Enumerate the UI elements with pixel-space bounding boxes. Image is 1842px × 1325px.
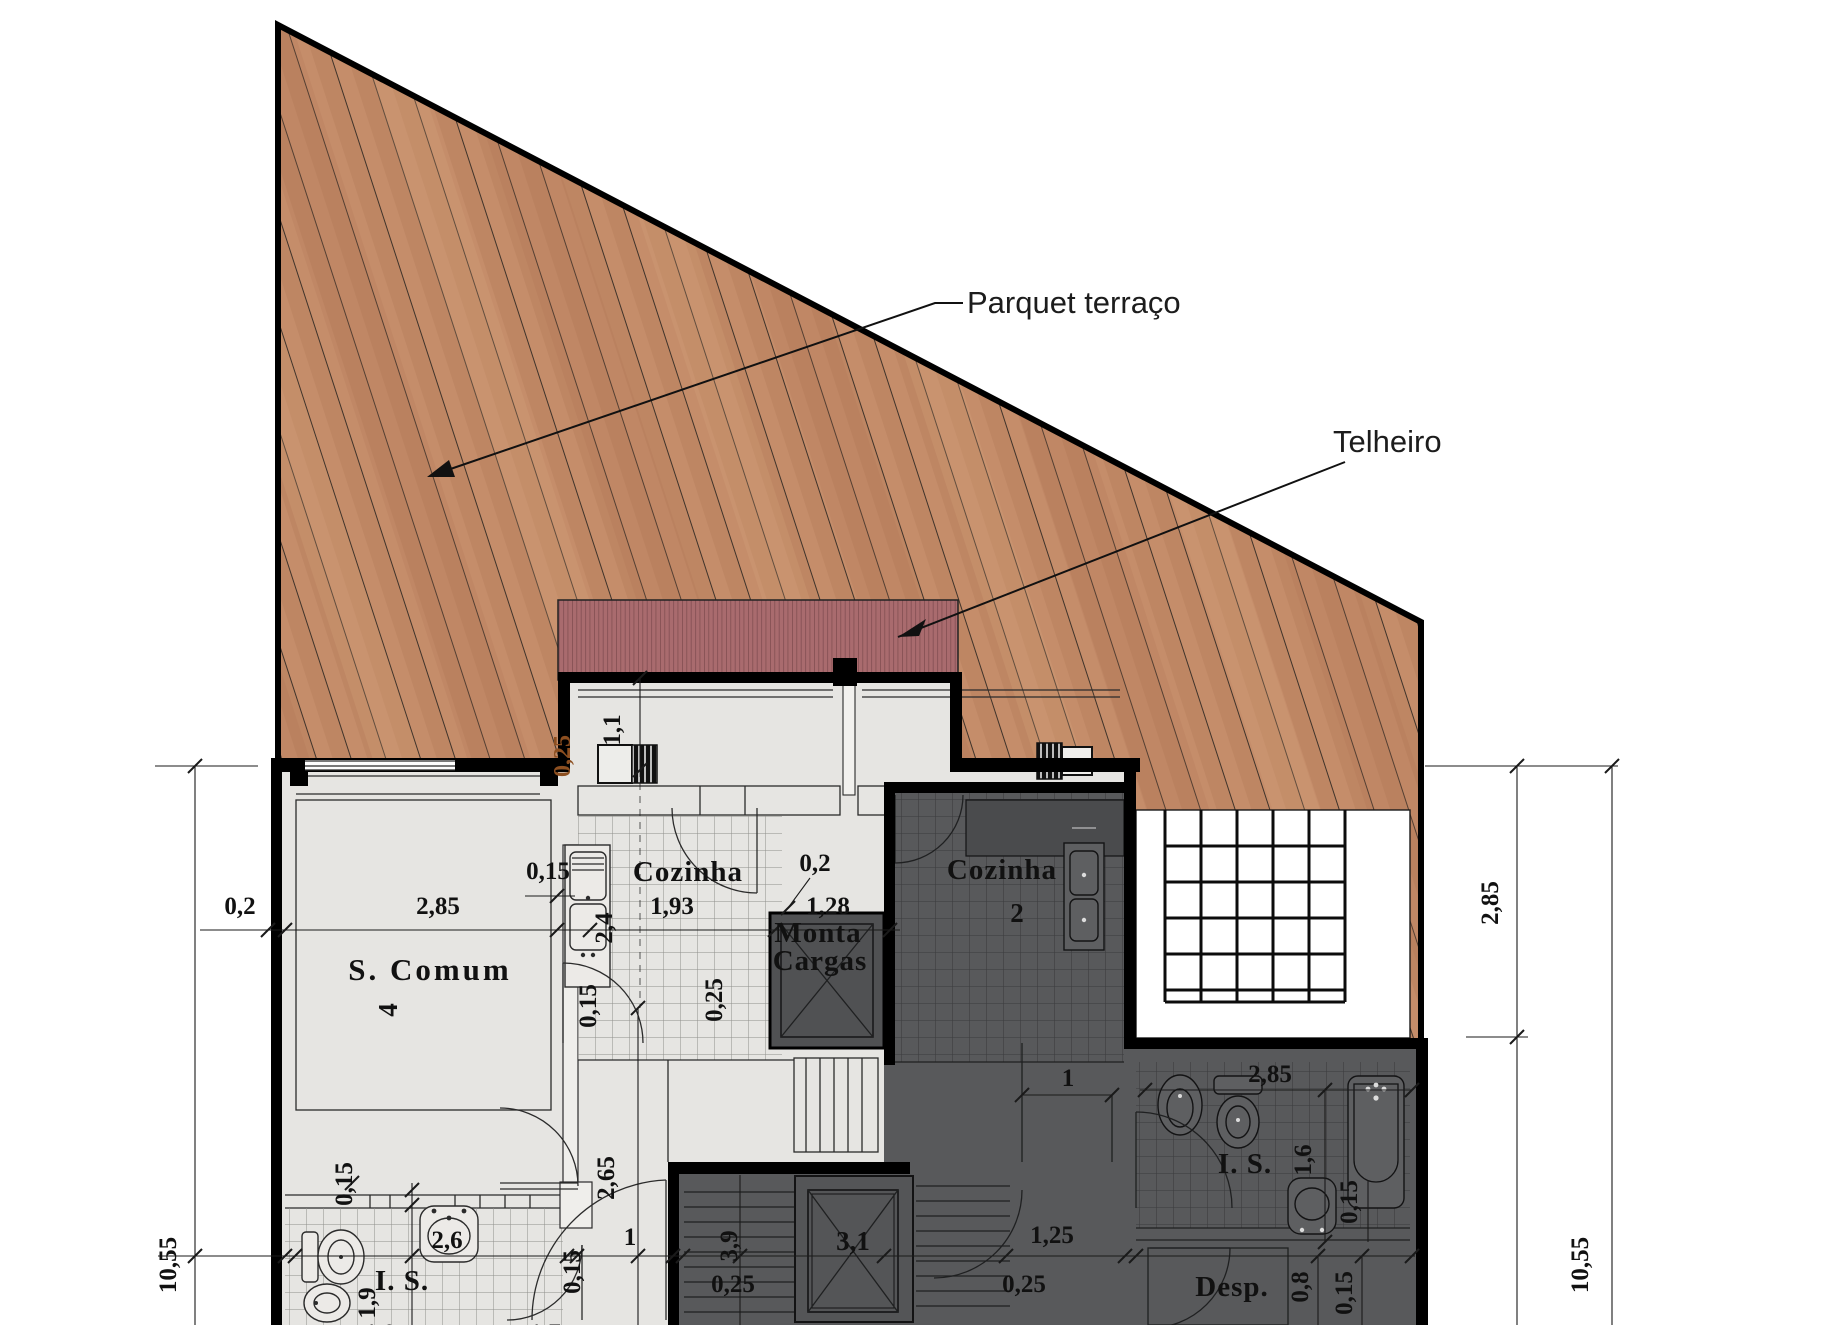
dim-left-total: 10,55 <box>155 1237 182 1293</box>
dim-kitchen-width: 1,93 <box>650 893 694 920</box>
floor-plan-canvas: 0,2 2,85 0,15 1,93 0,2 1,28 2,4 1,1 0,25… <box>0 0 1842 1325</box>
label-is-1: I. S. <box>375 1265 429 1297</box>
label-desp: Desp. <box>1195 1271 1268 1303</box>
telheiro-roof <box>558 600 958 680</box>
label-s-comum: S. Comum <box>348 952 512 987</box>
dim-k025: 0,25 <box>701 978 728 1022</box>
dim-c39: 3,9 <box>716 1230 743 1261</box>
dim-r285: 2,85 <box>1477 881 1504 925</box>
label-cozinha-1: Cozinha <box>633 856 743 888</box>
label-cozinha-2: Cozinha <box>947 854 1057 886</box>
floor-plan-drawing: 0,2 2,85 0,15 1,93 0,2 1,28 2,4 1,1 0,25… <box>0 0 1842 1325</box>
dim-cut-17: 1,7 <box>529 1320 560 1325</box>
bidet <box>304 1284 350 1322</box>
partition-terrace <box>843 685 855 795</box>
dim-wall-015: 0,15 <box>526 858 570 885</box>
skylight-grid <box>1136 810 1410 1038</box>
dim-b015b: 0,15 <box>559 1250 586 1294</box>
toilet <box>302 1230 364 1284</box>
dim-kitchen-02: 0,2 <box>799 850 830 877</box>
kitchen2-sink <box>1064 828 1104 950</box>
flue-left <box>598 745 657 783</box>
dim-c265: 2,65 <box>593 1156 620 1200</box>
dim-k015: 0,15 <box>575 984 602 1028</box>
dim-lift: 3,1 <box>836 1226 870 1256</box>
dim-d-door: 1 <box>1062 1065 1075 1092</box>
dim-c025: 0,25 <box>711 1271 755 1298</box>
dim-d08: 0,8 <box>1287 1271 1314 1302</box>
dim-monta-width: 1,28 <box>806 893 850 920</box>
label-parquet-terraco: Parquet terraço <box>967 285 1181 320</box>
dim-c-door: 1 <box>624 1224 637 1251</box>
dim-k24: 2,4 <box>591 912 618 944</box>
dim-k11: 1,1 <box>599 714 626 745</box>
dim-r-total: 10,55 <box>1567 1237 1594 1293</box>
dim-left-wall: 0,2 <box>224 893 255 920</box>
label-is-2: I. S. <box>1218 1148 1272 1180</box>
bidet2 <box>1158 1075 1202 1135</box>
washbasin2 <box>1288 1178 1336 1234</box>
dim-d285: 2,85 <box>1248 1061 1292 1088</box>
dim-d015b: 0,15 <box>1331 1271 1358 1315</box>
label-telheiro: Telheiro <box>1333 424 1442 459</box>
dim-basin: 2,6 <box>431 1227 462 1254</box>
label-cozinha-2-num: 2 <box>1010 898 1024 928</box>
dim-c025b: 0,25 <box>1002 1271 1046 1298</box>
label-s-comum-num: 4 <box>373 1003 403 1017</box>
dim-d16: 1,6 <box>1290 1144 1317 1175</box>
dim-c125: 1,25 <box>1030 1222 1074 1249</box>
dim-cut-10: 1,0 <box>364 1320 395 1325</box>
dim-k025-orange: 0,25 <box>550 735 576 777</box>
dim-scomum-width: 2,85 <box>416 893 460 920</box>
label-cargas: Cargas <box>773 945 868 977</box>
dim-d015a: 0,15 <box>1336 1180 1363 1224</box>
dim-b015a: 0,15 <box>331 1162 358 1206</box>
